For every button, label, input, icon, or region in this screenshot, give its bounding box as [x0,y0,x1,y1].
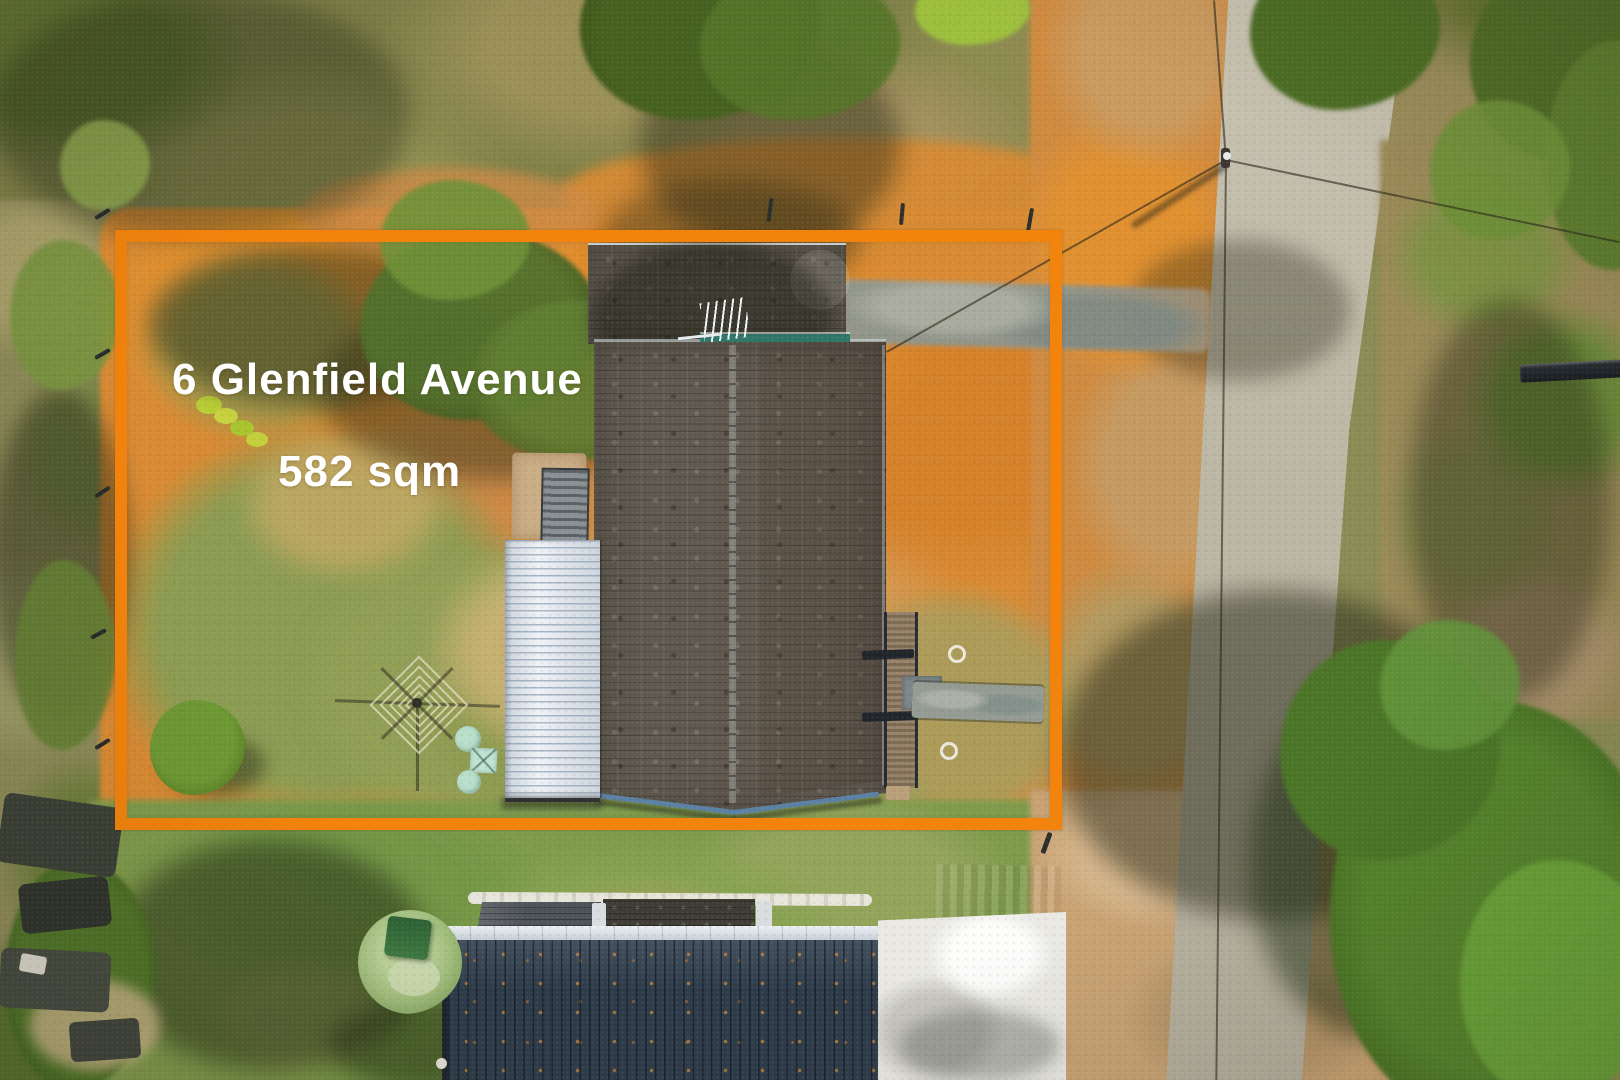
property-area-label: 582 sqm [278,447,461,497]
property-address-label: 6 Glenfield Avenue [172,355,583,405]
aerial-property-photo: 6 Glenfield Avenue 582 sqm [0,0,1620,1080]
green-bin [384,915,433,960]
bottomhouse-metal-roof [442,940,886,1080]
junk-debris [69,1018,142,1063]
junk-debris [0,947,111,1013]
lawn-object-white [436,1058,447,1069]
junk-debris [18,875,113,934]
pad-shadow [900,1010,1060,1080]
garden-circle-center [388,958,440,996]
bottomhouse-gutter [446,926,882,941]
property-boundary-overlay [115,230,1062,830]
pole-insulator [1223,152,1231,160]
